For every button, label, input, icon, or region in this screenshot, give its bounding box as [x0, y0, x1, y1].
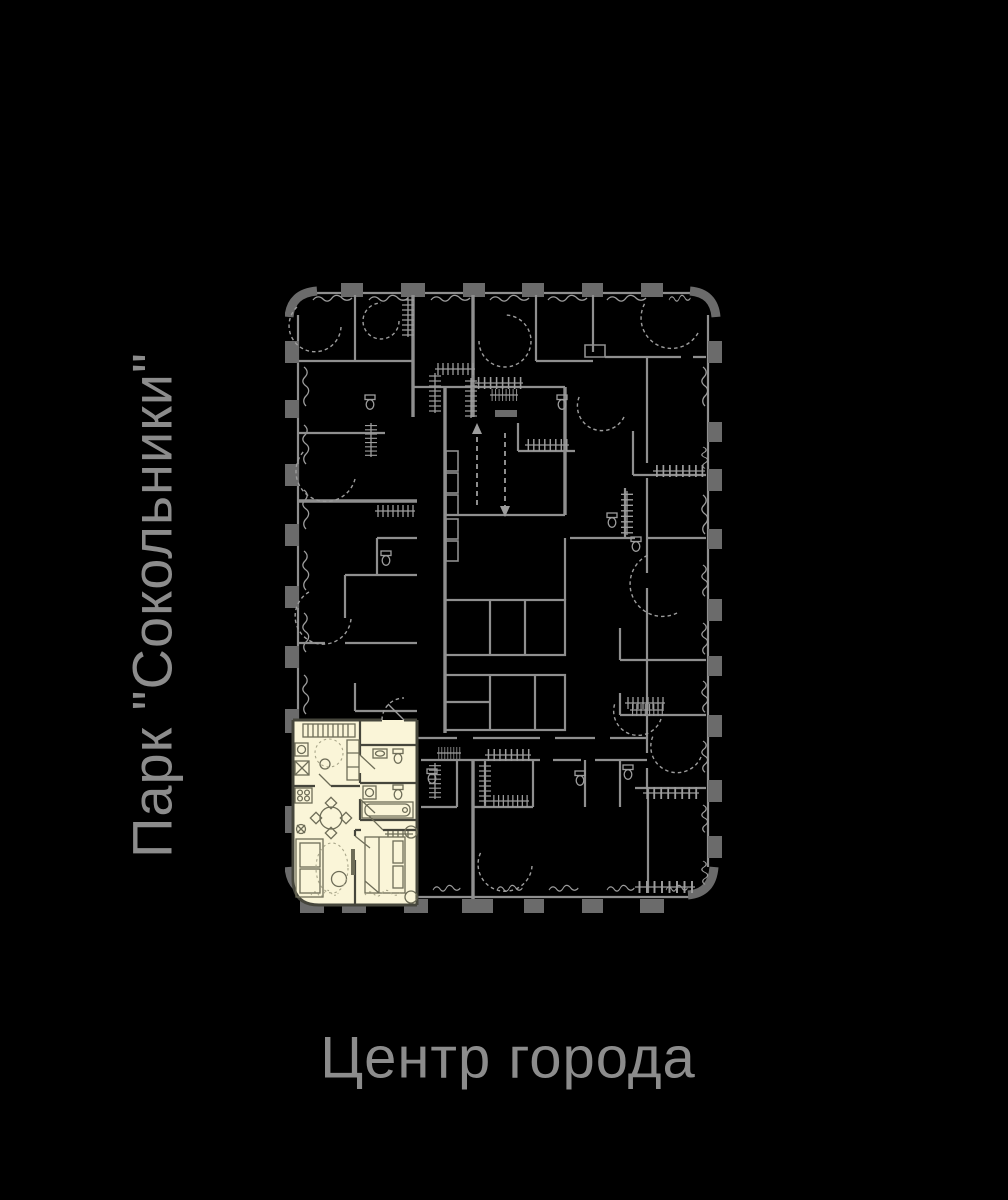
selected-apartment[interactable] — [293, 698, 417, 905]
park-sokolniki-label: Парк "Сокольники" — [120, 352, 185, 858]
corner-top-left — [289, 291, 317, 317]
tv-unit — [351, 849, 355, 875]
city-center-label: Центр города — [320, 1025, 696, 1092]
stairwell — [446, 423, 510, 561]
corner-top-right — [690, 291, 716, 317]
floor-plan-page: { "labels": { "left": "Парк \"Сокольники… — [0, 0, 1008, 1200]
floor-plan — [285, 283, 722, 913]
